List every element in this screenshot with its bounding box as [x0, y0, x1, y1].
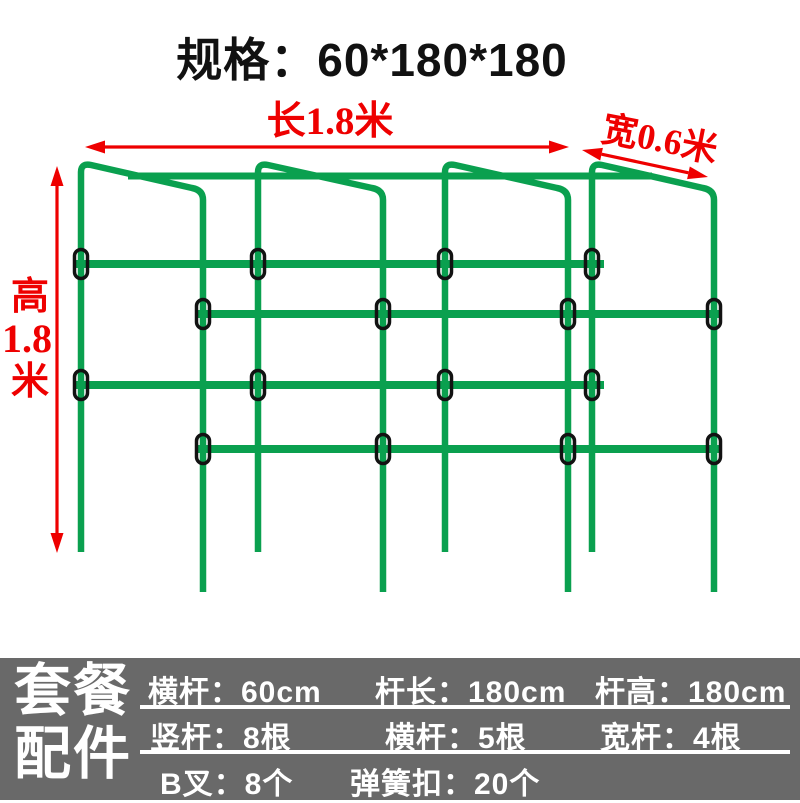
post-pair-4	[592, 165, 714, 592]
length-dimension-label: 长1.8米	[267, 100, 394, 143]
dimension-arrows	[51, 141, 709, 554]
spec-cell-vertical-poles: 竖杆：8根	[150, 713, 292, 757]
spec-cell-crossbar-length: 横杆：60cm	[148, 667, 322, 711]
length-arrow-head	[85, 141, 105, 154]
height-dimension-label-3: 米	[11, 361, 49, 403]
spec-panel: 套餐 配件 横杆：60cm 杆长：180cm 杆高：180cm 竖杆：8根 横杆…	[0, 658, 800, 800]
spec-cell-spring-clips: 弹簧扣：20个	[350, 759, 540, 803]
height-dimension-label-2: 1.8	[2, 316, 52, 361]
spec-cell-cross-poles: 横杆：5根	[385, 713, 527, 757]
spec-cell-pole-length: 杆长：180cm	[375, 667, 566, 711]
post-pair-3	[445, 165, 568, 592]
post-pair-1	[81, 165, 203, 592]
height-dimension-label-1: 高	[11, 276, 49, 318]
post-pair-2	[258, 165, 383, 592]
spec-panel-title: 套餐 配件	[14, 660, 140, 787]
spec-cell-width-poles: 宽杆：4根	[600, 713, 742, 757]
height-arrow-head	[51, 533, 64, 553]
width-arrow-head	[582, 148, 603, 161]
spec-cell-pole-height: 杆高：180cm	[595, 667, 786, 711]
trellis-structure	[75, 165, 723, 592]
trellis-diagram: 长1.8米 宽0.6米 高 1.8 米	[0, 0, 800, 658]
spec-cell-b-forks: B叉：8个	[160, 759, 293, 803]
width-dimension-label: 宽0.6米	[598, 108, 721, 171]
length-arrow-head	[549, 141, 569, 154]
height-arrow-head	[51, 166, 64, 186]
